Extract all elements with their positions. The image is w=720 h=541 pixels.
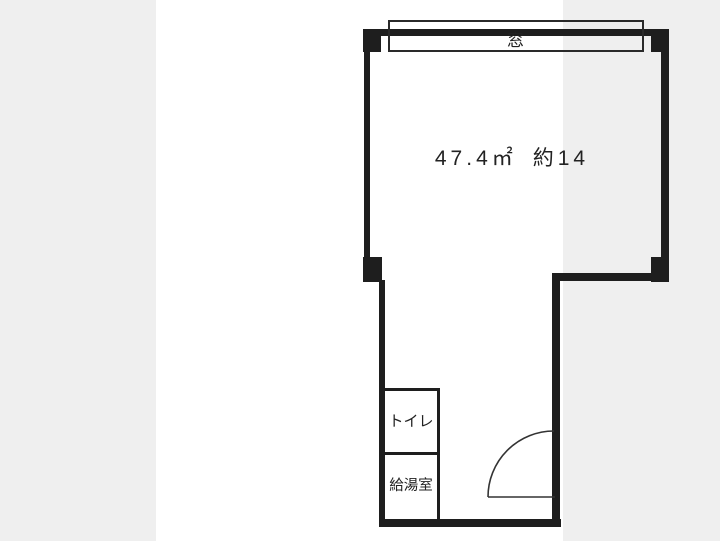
window-symbol: 窓 <box>388 20 644 52</box>
door-swing-icon <box>476 420 566 510</box>
wall-right-upper <box>661 29 669 259</box>
floorplan-page: 窓 47.4㎡約14 トイレ 給湯室 <box>0 0 720 541</box>
wall-pillar-middle-right <box>651 257 669 282</box>
kitchenette-room: 給湯室 <box>382 452 440 522</box>
room-area-label: 47.4㎡約14 <box>382 142 642 172</box>
wall-pillar-middle-left <box>363 257 382 282</box>
floorplan-canvas: 窓 47.4㎡約14 トイレ 給湯室 <box>156 0 563 541</box>
wall-left-upper <box>364 29 370 259</box>
room-area-sqm: 47.4㎡ <box>435 147 517 170</box>
toilet-room: トイレ <box>382 388 440 455</box>
window-label: 窓 <box>507 32 525 50</box>
kitchenette-label: 給湯室 <box>389 479 433 494</box>
toilet-label: トイレ <box>388 414 433 430</box>
room-area-tatami: 約14 <box>533 147 589 170</box>
